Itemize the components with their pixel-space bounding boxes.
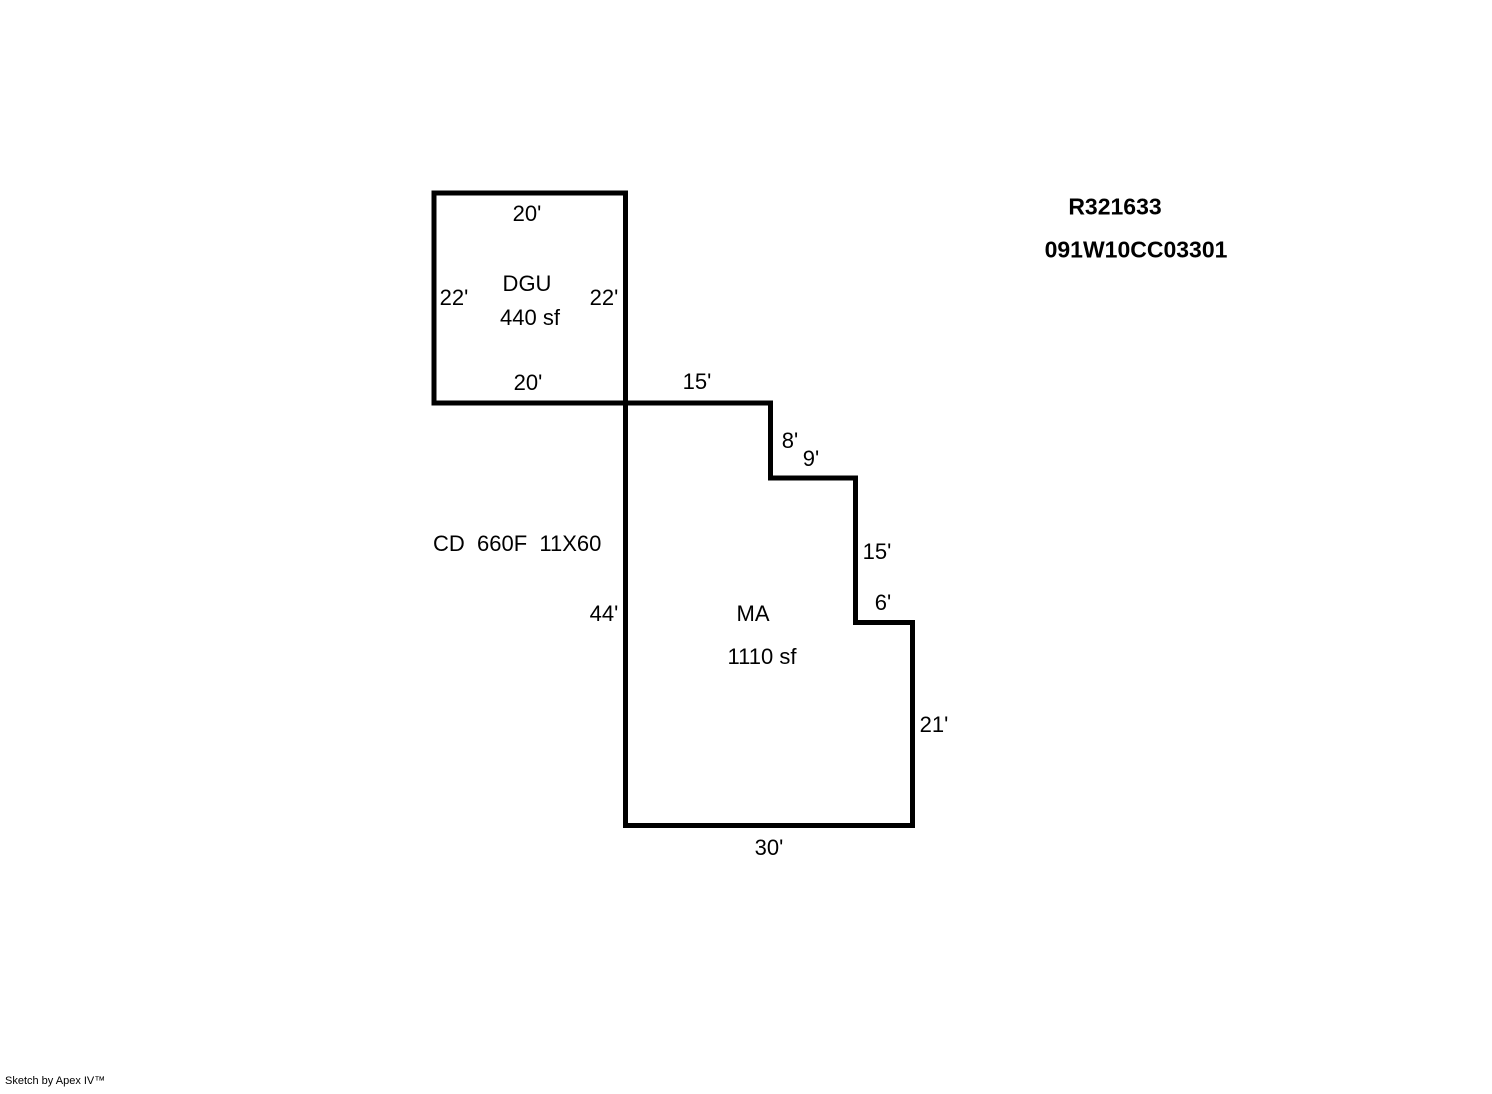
ma-dim-step-6: 6' [875, 592, 891, 614]
ma-dim-top: 15' [683, 371, 712, 393]
floorplan-drawing [0, 0, 1492, 1094]
dgu-label: DGU [503, 273, 552, 295]
dgu-dim-top: 20' [513, 203, 542, 225]
ma-area: 1110 sf [728, 646, 797, 668]
sketch-credit: Sketch by Apex IV™ [5, 1076, 105, 1087]
dgu-dim-left: 22' [440, 287, 469, 309]
ma-dim-step-8: 8' [782, 430, 798, 452]
parcel-id: 091W10CC03301 [1045, 239, 1228, 262]
code-annotation: CD 660F 11X60 [433, 533, 601, 555]
ma-dim-left: 44' [590, 603, 619, 625]
dgu-area: 440 sf [500, 307, 560, 329]
ma-label: MA [737, 603, 770, 625]
record-id: R321633 [1068, 196, 1161, 219]
ma-dim-step-9: 9' [803, 448, 819, 470]
sketch-page: 20' DGU 22' 22' 440 sf 20' 15' 8' 9' 15'… [0, 0, 1492, 1094]
dgu-dim-bottom: 20' [514, 372, 543, 394]
ma-dim-right: 21' [920, 714, 949, 736]
ma-dim-step-15: 15' [863, 541, 892, 563]
dgu-dim-right: 22' [590, 287, 619, 309]
ma-dim-bottom: 30' [755, 837, 784, 859]
